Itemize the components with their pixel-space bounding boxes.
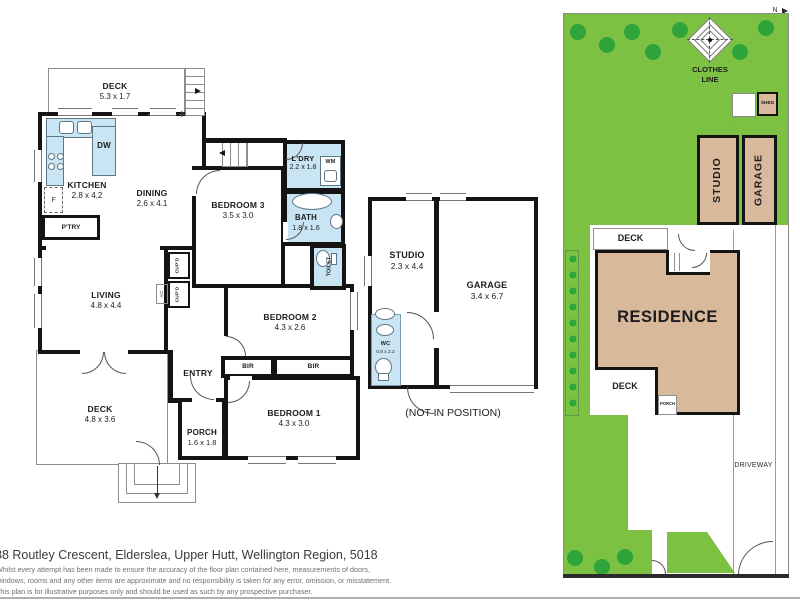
- toilet-label: TOILET: [326, 247, 335, 287]
- dw-label: DW: [90, 140, 118, 152]
- outbuilding-divider-lower: [434, 348, 439, 387]
- wc-basin2-icon: [376, 324, 394, 336]
- site-notch-stairs-icon: [670, 253, 684, 271]
- laundry-name: L'DRY: [292, 154, 315, 164]
- north-text: N: [772, 6, 777, 15]
- floorplan-page: DW F P'TRY WM CUP'D CUP'D A/C DECK5.3 x …: [0, 0, 800, 600]
- wc-basin-icon: [375, 308, 395, 320]
- deck-top-label: DECK5.3 x 1.7: [60, 76, 170, 108]
- porch-name: PORCH: [187, 428, 217, 438]
- wc-dims-label: 0.8 x 2.2: [369, 350, 402, 357]
- bedroom1-label: BEDROOM 14.3 x 3.0: [254, 406, 334, 432]
- tree-icon: [732, 44, 748, 60]
- window-kitchen: [34, 150, 42, 182]
- wm-label: WM: [319, 158, 342, 167]
- landing-stair-arrow-icon: [219, 150, 225, 156]
- disclaimer-block: Whilst every attempt has been made to en…: [0, 564, 476, 597]
- landing-stairs-icon: [222, 142, 248, 167]
- tree-icon: [758, 20, 774, 36]
- driveway-right-line: [775, 225, 776, 578]
- window-bedroom1-2: [298, 456, 336, 464]
- wc-name: WC: [381, 341, 391, 348]
- laundry-label: L'DRY2.2 x 1.8: [284, 152, 322, 174]
- bedroom1-name: BEDROOM 1: [267, 408, 320, 419]
- bath-name: BATH: [295, 213, 317, 223]
- address-text: 88 Routley Crescent, Elderslea, Upper Hu…: [0, 548, 425, 562]
- wc-cistern-icon: [378, 373, 389, 381]
- pantry: P'TRY: [42, 215, 100, 240]
- site-front-boundary: [563, 574, 789, 578]
- window-living-1: [34, 258, 42, 286]
- ac-text: A/C: [159, 290, 165, 297]
- wc-dims: 0.8 x 2.2: [376, 350, 394, 356]
- deck-bottom-label: DECK4.8 x 3.6: [60, 402, 140, 428]
- steps-arrow-icon: [154, 493, 160, 499]
- site-porch-label: PORCH: [656, 399, 679, 408]
- wall-entry-bottom: [168, 398, 182, 403]
- sink-icon: [59, 121, 74, 134]
- garage-name: GARAGE: [467, 280, 508, 292]
- site-porch-text: PORCH: [660, 401, 675, 406]
- cooktop-icon: [48, 163, 55, 170]
- tree-icon: [599, 37, 615, 53]
- footer-divider: [0, 597, 800, 599]
- site-shed-label: SHED: [757, 98, 778, 110]
- cupd2-text: CUP'D: [176, 287, 182, 303]
- bedroom3-dims: 3.5 x 3.0: [223, 211, 254, 221]
- site-deck-upper-text: DECK: [618, 233, 644, 245]
- living-dims: 4.8 x 4.4: [91, 301, 122, 311]
- basin-icon: [330, 214, 343, 229]
- window-dining-top-2: [150, 108, 176, 116]
- site-garage-label: GARAGE: [753, 150, 767, 211]
- toilet-text: TOILET: [327, 257, 334, 277]
- path-line: [733, 117, 734, 135]
- bedroom3-label: BEDROOM 33.5 x 3.0: [196, 198, 280, 224]
- cooktop-icon: [57, 163, 64, 170]
- dw-text: DW: [97, 141, 111, 151]
- wc-label: WC: [371, 341, 400, 349]
- kitchen-label: KITCHEN2.8 x 4.2: [60, 178, 114, 204]
- site-studio-text: STUDIO: [711, 157, 725, 203]
- bedroom2-label: BEDROOM 24.3 x 2.6: [250, 310, 330, 336]
- wall-north-landing: [202, 138, 287, 143]
- deck-top-dims: 5.3 x 1.7: [100, 92, 131, 102]
- stair-arrow-icon: [195, 88, 201, 94]
- sink-icon: [77, 121, 92, 134]
- tree-icon: [567, 550, 583, 566]
- laundry-tub-icon: [324, 170, 337, 182]
- tree-icon: [672, 22, 688, 38]
- kitchen-dims: 2.8 x 4.2: [72, 191, 103, 201]
- window-dining-top-1: [112, 108, 138, 116]
- stair-guide-arrow-icon: [181, 111, 186, 117]
- bathtub-icon: [292, 193, 332, 210]
- ac-label: A/C: [158, 280, 166, 308]
- steps-arrow-line: [157, 466, 158, 494]
- pantry-label: P'TRY: [62, 224, 81, 231]
- porch-label: PORCH1.6 x 1.8: [179, 426, 225, 450]
- cupd2-label: CUP'D: [175, 275, 184, 315]
- clothes-line-icon: [687, 17, 733, 63]
- clothes-line-label: CLOTHES LINE: [688, 64, 732, 86]
- window-studio-left: [364, 256, 372, 286]
- garage-dims: 3.4 x 6.7: [471, 291, 504, 302]
- bedroom1-dims: 4.3 x 3.0: [279, 419, 310, 429]
- bedroom2-dims: 4.3 x 2.6: [275, 323, 306, 333]
- window-kitchen-top: [58, 108, 92, 116]
- wm-text: WM: [325, 159, 335, 166]
- site-residence-text: RESIDENCE: [617, 307, 718, 328]
- deck-bottom-name: DECK: [88, 404, 113, 415]
- entry-text: ENTRY: [183, 368, 213, 379]
- bir-left-label: BIR: [221, 358, 275, 376]
- site-deck-lower-label: DECK: [595, 378, 655, 396]
- not-in-position-note: (NOT IN POSITION): [368, 407, 538, 420]
- cooktop-icon: [48, 153, 55, 160]
- north-label: N: [770, 6, 780, 16]
- open-plan-gap: [46, 244, 160, 254]
- deck-top-name: DECK: [103, 81, 128, 92]
- site-residence-label: RESIDENCE: [598, 306, 737, 330]
- living-label: LIVING4.8 x 4.4: [78, 288, 134, 314]
- garage-door-line: [450, 385, 534, 393]
- site-driveway-text: DRIVEWAY: [734, 461, 772, 470]
- studio-label: STUDIO2.3 x 4.4: [374, 248, 440, 274]
- site-deck-lower-text: DECK: [612, 381, 638, 393]
- hedge-strip: [565, 250, 579, 416]
- bir-right-text: BIR: [308, 363, 320, 371]
- studio-name: STUDIO: [389, 250, 424, 262]
- clothes-line-center-dot: [708, 38, 712, 42]
- cupd1-text: CUP'D: [176, 258, 182, 274]
- disclaimer-line-2: windows, rooms and any other items are a…: [0, 575, 476, 586]
- kitchen-name: KITCHEN: [67, 180, 106, 191]
- bir-left-text: BIR: [242, 363, 254, 371]
- site-shed-text: SHED: [761, 101, 774, 107]
- window-studio-top-1: [406, 193, 432, 201]
- studio-dims: 2.3 x 4.4: [391, 261, 424, 272]
- porch-dims: 1.6 x 1.8: [188, 438, 217, 448]
- site-studio-label: STUDIO: [711, 150, 725, 210]
- dining-name: DINING: [137, 188, 168, 199]
- note-text: (NOT IN POSITION): [405, 407, 500, 421]
- bedroom3-name: BEDROOM 3: [211, 200, 264, 211]
- tree-icon: [645, 44, 661, 60]
- bir-right-label: BIR: [273, 358, 354, 376]
- bath-label: BATH1.8 x 1.6: [286, 212, 326, 234]
- site-white-square: [732, 93, 756, 117]
- tree-icon: [617, 549, 633, 565]
- dining-label: DINING2.6 x 4.1: [124, 186, 180, 212]
- laundry-dims: 2.2 x 1.8: [290, 163, 317, 172]
- tree-icon: [594, 559, 610, 575]
- deck-bottom-dims: 4.8 x 3.6: [85, 415, 116, 425]
- entry-label: ENTRY: [170, 368, 226, 380]
- cooktop-icon: [57, 153, 64, 160]
- dining-dims: 2.6 x 4.1: [137, 199, 168, 209]
- disclaimer-line-1: Whilst every attempt has been made to en…: [0, 564, 476, 575]
- window-bedroom1-1: [248, 456, 286, 464]
- site-garage-text: GARAGE: [753, 154, 767, 206]
- bath-dims: 1.8 x 1.6: [292, 223, 320, 232]
- site-driveway-label: DRIVEWAY: [731, 460, 776, 471]
- clothes-line-text: CLOTHES LINE: [688, 65, 732, 85]
- tree-icon: [624, 24, 640, 40]
- tree-icon: [570, 24, 586, 40]
- site-deck-upper-label: DECK: [593, 230, 668, 248]
- living-name: LIVING: [91, 290, 121, 301]
- garage-label: GARAGE3.4 x 6.7: [452, 278, 522, 304]
- window-studio-top-2: [440, 193, 466, 201]
- bedroom2-name: BEDROOM 2: [263, 312, 316, 323]
- window-bedroom2: [350, 292, 358, 330]
- site-white-lower: [628, 415, 788, 530]
- window-living-2: [34, 294, 42, 328]
- disclaimer-line-3: This plan is for illustrative purposes o…: [0, 586, 476, 597]
- fridge-label: F: [51, 197, 55, 204]
